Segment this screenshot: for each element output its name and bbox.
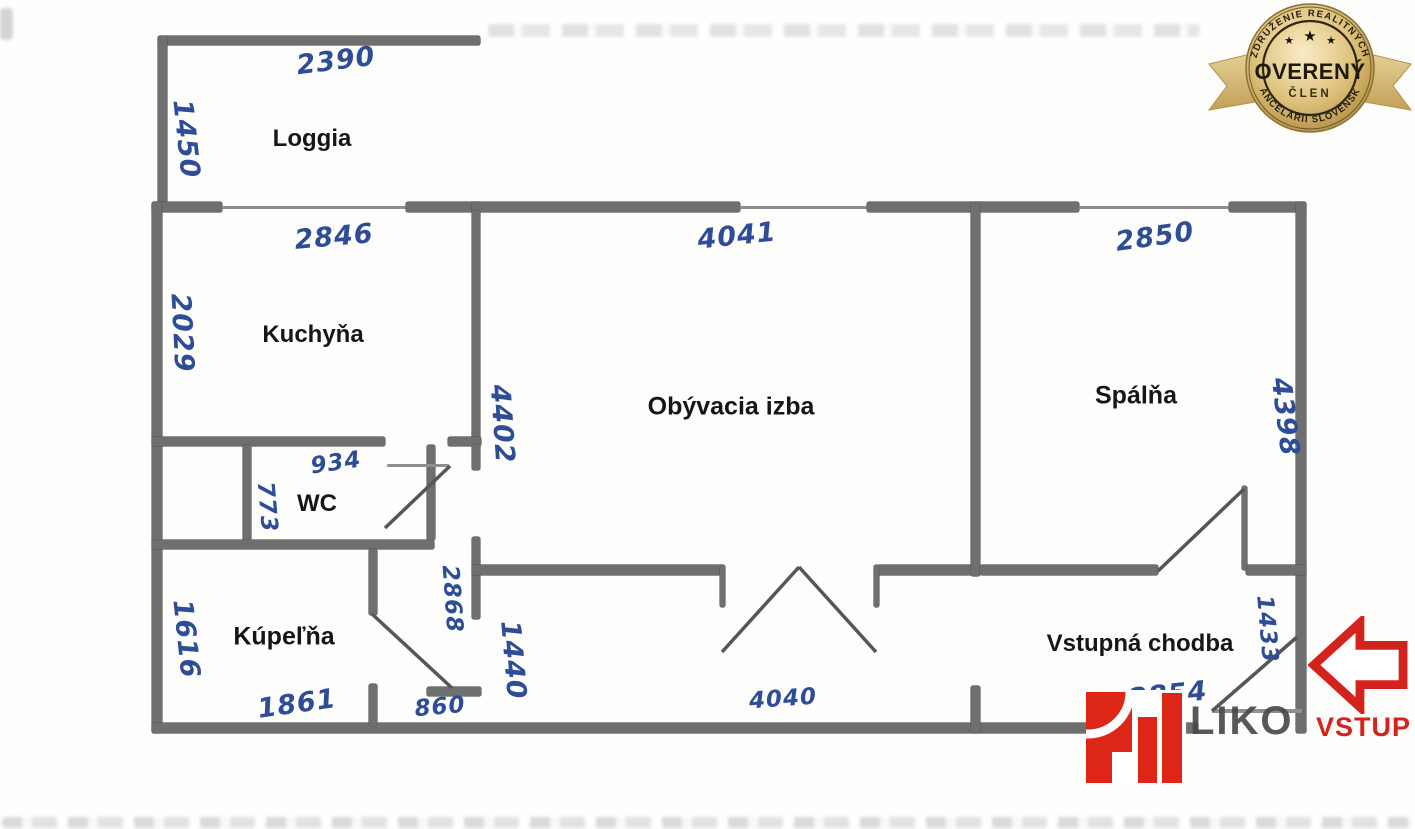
dim-bathroom-depth: 1616 bbox=[166, 598, 205, 680]
room-label-living: Obývacia izba bbox=[648, 393, 815, 422]
wall-loggia-top bbox=[158, 36, 480, 45]
dim-wc-width: 934 bbox=[309, 447, 363, 480]
scan-smudge-top bbox=[488, 24, 1200, 37]
agency-logo bbox=[1086, 690, 1186, 785]
scan-smudge-bottom bbox=[2, 817, 1412, 828]
wall-living-bedroom bbox=[971, 202, 980, 576]
dim-kitchen-width: 2846 bbox=[293, 218, 375, 256]
dim-living-width: 4041 bbox=[696, 216, 778, 255]
dim-corridor-depth: 2868 bbox=[437, 564, 468, 634]
bedroom-door-swing bbox=[1158, 489, 1244, 571]
badge-star-center: ★ bbox=[1303, 28, 1316, 45]
wall-bottom-outer bbox=[152, 723, 1198, 733]
wall-kitchen-south bbox=[152, 437, 385, 446]
wall-right-outer bbox=[1296, 202, 1306, 733]
dim-loggia-width: 2390 bbox=[295, 41, 377, 81]
dim-wc-depth: 773 bbox=[252, 480, 282, 533]
dim-nook-width: 860 bbox=[413, 692, 466, 722]
wc-door-frame bbox=[387, 464, 449, 467]
room-label-bedroom: Spálňa bbox=[1095, 382, 1177, 411]
doorstub-double-left bbox=[720, 565, 725, 607]
wall-kitchen-east bbox=[472, 210, 480, 444]
double-door-leaf-left bbox=[722, 567, 799, 652]
wc-door-swing bbox=[385, 466, 450, 528]
dim-living-depth: 4402 bbox=[484, 383, 520, 464]
badge-subtitle: ČLEN bbox=[1288, 87, 1331, 100]
wall-wc-west bbox=[243, 445, 251, 547]
entrance-arrow-icon bbox=[1308, 616, 1408, 714]
room-label-hall: Vstupná chodba bbox=[1047, 630, 1234, 658]
dim-hall-bottom-width: 4040 bbox=[748, 684, 818, 715]
floor-plan-page: Loggia Kuchyňa WC Kúpeľňa Obývacia izba … bbox=[0, 0, 1415, 829]
dim-bedroom-width: 2850 bbox=[1114, 216, 1197, 258]
entrance-label: VSTUP bbox=[1316, 712, 1411, 743]
dim-hall-depth: 1433 bbox=[1251, 594, 1283, 664]
dim-bathroom-width: 1861 bbox=[256, 683, 339, 725]
wall-corridor-west-a bbox=[472, 444, 480, 470]
dim-corridor-width: 1440 bbox=[494, 619, 532, 701]
dim-kitchen-depth: 2029 bbox=[164, 293, 199, 374]
doorstub-double-right bbox=[874, 565, 879, 607]
window-bedroom bbox=[1079, 206, 1229, 209]
wall-bath-east-stub bbox=[369, 684, 377, 726]
room-label-wc: WC bbox=[297, 490, 337, 518]
dim-loggia-depth: 1450 bbox=[166, 98, 205, 180]
wall-living-bedroom-stub bbox=[971, 686, 980, 733]
wall-top-stub-left bbox=[152, 202, 222, 212]
window-loggia bbox=[222, 206, 408, 209]
wall-loggia-left bbox=[158, 36, 167, 208]
wall-bath-east bbox=[369, 549, 377, 615]
badge-title: OVERENÝ bbox=[1254, 59, 1365, 84]
verified-badge: ★ ★ ★ OVERENÝ ČLEN ZDRUŽENIE REALITNÝCH … bbox=[1203, 0, 1415, 140]
bedroom-door-leaf bbox=[1242, 486, 1247, 570]
badge-star-left: ★ bbox=[1284, 35, 1294, 47]
wall-top-3 bbox=[1229, 202, 1306, 212]
wall-hall-north-2 bbox=[877, 565, 979, 575]
badge-star-right: ★ bbox=[1326, 35, 1336, 47]
wall-hall-north-1 bbox=[472, 565, 724, 575]
wall-left-outer bbox=[152, 202, 162, 733]
wall-wc-east bbox=[427, 445, 435, 540]
double-door-leaf-right bbox=[799, 567, 876, 652]
room-label-loggia: Loggia bbox=[273, 125, 352, 153]
watermark-text-fragment: LIKO bbox=[1190, 699, 1294, 744]
room-label-kitchen: Kuchyňa bbox=[262, 321, 363, 349]
wall-top-1 bbox=[472, 202, 740, 212]
wall-bath-north bbox=[152, 540, 434, 549]
window-living bbox=[740, 206, 867, 209]
wall-bedroom-south-2 bbox=[1246, 565, 1306, 575]
scan-smudge-corner bbox=[0, 8, 13, 40]
wall-top-stub-right bbox=[406, 202, 481, 212]
wall-corridor-west-b bbox=[472, 537, 480, 619]
wall-bedroom-south-1 bbox=[980, 565, 1158, 575]
room-label-bathroom: Kúpeľňa bbox=[233, 623, 334, 652]
